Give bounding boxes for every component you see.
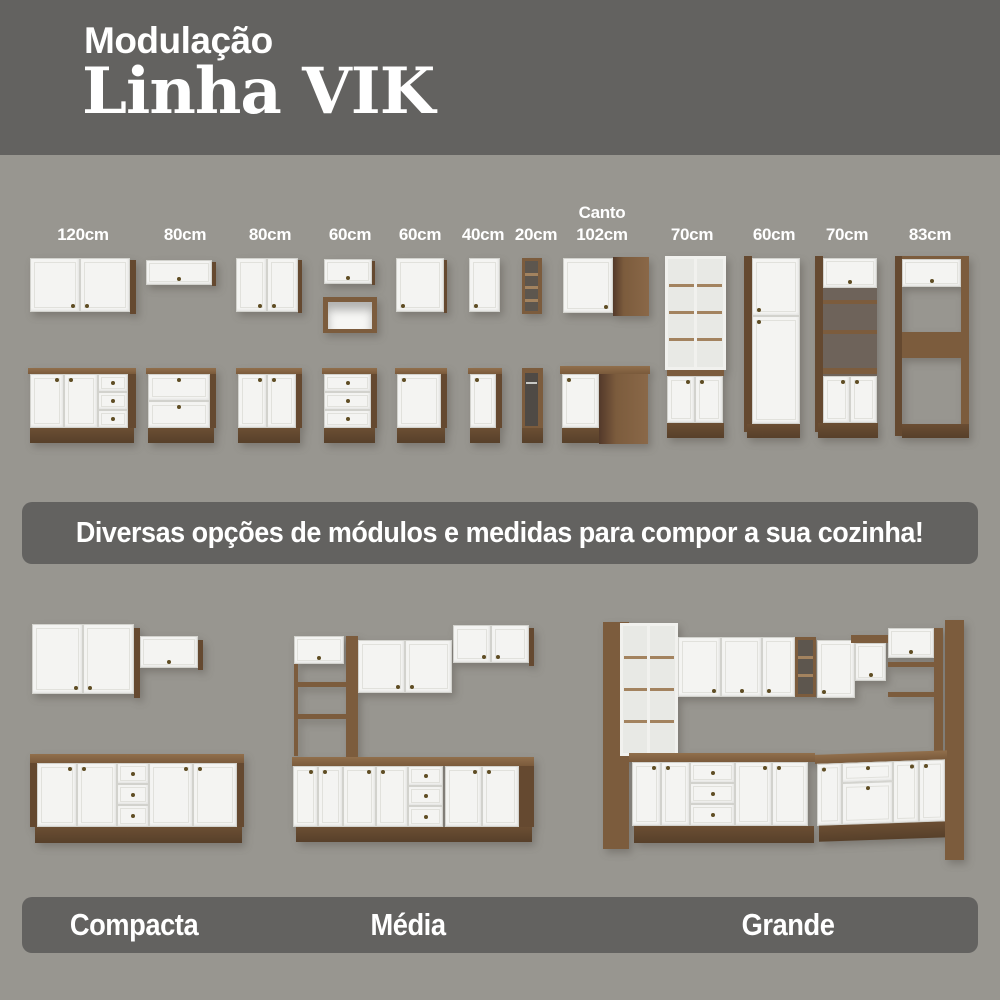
drawer	[98, 410, 128, 428]
base-cabinet-60cm-drawers	[322, 368, 377, 443]
plinth	[562, 428, 599, 443]
module-label-102cm: 102cm	[576, 226, 627, 243]
countertop	[629, 753, 815, 762]
wood-side	[237, 763, 244, 827]
drawer	[408, 766, 443, 786]
shelf	[525, 273, 538, 276]
door	[470, 374, 496, 428]
wood-column	[945, 620, 964, 860]
module-label-canto: Canto	[579, 204, 626, 221]
door	[30, 374, 64, 428]
base-unit-20cm	[522, 368, 543, 443]
door	[77, 763, 117, 827]
door	[405, 640, 452, 693]
door	[149, 763, 193, 827]
module-label-60cm-3: 60cm	[753, 226, 795, 243]
plinth	[818, 423, 878, 438]
door	[823, 376, 850, 423]
module-label-120cm: 120cm	[57, 226, 108, 243]
wood-side	[519, 766, 534, 827]
drawer	[324, 374, 371, 392]
niche-interior	[328, 302, 372, 329]
door	[64, 374, 98, 428]
shelf	[823, 300, 877, 304]
wood-side	[30, 763, 37, 827]
door	[376, 766, 408, 827]
door	[267, 258, 298, 312]
drawer	[324, 410, 371, 428]
plinth	[522, 428, 543, 443]
middle-banner-text: Diversas opções de módulos e medidas par…	[76, 517, 924, 550]
door	[919, 759, 945, 822]
module-label-70cm-1: 70cm	[671, 226, 713, 243]
open-interior	[798, 640, 813, 694]
wood-side	[441, 374, 447, 428]
door	[396, 258, 444, 312]
module-label-80cm-1: 80cm	[164, 226, 206, 243]
shelf	[525, 299, 538, 302]
door	[735, 762, 772, 826]
drawer	[117, 784, 149, 805]
countertop	[560, 366, 650, 374]
base-cabinet-40cm	[468, 368, 502, 443]
drawer	[842, 781, 893, 825]
door	[445, 766, 482, 827]
flip-door	[140, 636, 198, 668]
wood-side	[294, 664, 298, 756]
plinth	[819, 821, 945, 841]
door	[238, 374, 267, 428]
door	[294, 636, 344, 664]
shelf	[294, 682, 354, 687]
wall-cabinet-60cm	[396, 258, 447, 314]
wood-side	[371, 374, 377, 428]
door	[562, 374, 599, 428]
plinth	[470, 428, 500, 443]
base-cabinet-60cm	[395, 368, 447, 443]
wood-side	[444, 260, 447, 313]
kitchen-grande	[603, 616, 973, 874]
door	[661, 762, 690, 826]
base-cabinet-80cm	[236, 368, 302, 443]
door	[453, 625, 491, 663]
module-label-20cm: 20cm	[515, 226, 557, 243]
drawer	[690, 804, 735, 826]
drawer	[117, 763, 149, 784]
drawer	[690, 783, 735, 804]
door	[893, 760, 919, 823]
shelf	[294, 714, 354, 719]
wood-side	[961, 256, 969, 438]
door	[772, 762, 808, 826]
wood-side	[198, 640, 203, 670]
wood-side	[895, 256, 902, 436]
wood-side	[296, 374, 302, 428]
shelf	[823, 368, 877, 374]
door	[80, 258, 130, 312]
wood-side	[130, 260, 136, 314]
plinth	[397, 428, 445, 443]
plinth	[324, 428, 375, 443]
drawer	[408, 806, 443, 827]
header-banner: Modulação Linha VIK	[0, 0, 1000, 155]
wood-side	[372, 261, 375, 285]
glass-mullion	[647, 626, 650, 753]
door	[469, 258, 500, 312]
open-interior	[525, 373, 538, 426]
countertop	[292, 757, 534, 766]
tall-cabinet-glass-70cm	[665, 256, 726, 438]
kitchen-media	[290, 618, 536, 848]
flip-door	[146, 260, 212, 285]
tall-cabinet-oven-70cm	[815, 256, 881, 438]
drawer	[408, 786, 443, 806]
door	[817, 763, 842, 826]
module-label-60cm-1: 60cm	[329, 226, 371, 243]
base-cabinet-120cm	[28, 368, 136, 443]
open-niche-60cm	[323, 297, 377, 333]
door	[83, 624, 134, 694]
wood-side	[210, 374, 216, 428]
door	[752, 316, 800, 424]
door	[762, 637, 795, 697]
door	[695, 376, 723, 423]
shelf	[525, 286, 538, 289]
tall-cabinet-60cm	[744, 256, 802, 438]
page: Modulação Linha VIK 120cm 80cm 80cm 60cm…	[0, 0, 1000, 1000]
wood-side	[529, 628, 534, 666]
door	[482, 766, 519, 827]
wall-cabinet-80cm	[236, 258, 302, 314]
wood-back-panel	[902, 332, 961, 358]
door	[318, 766, 343, 827]
door	[37, 763, 77, 827]
middle-banner: Diversas opções de módulos e medidas par…	[22, 502, 978, 564]
corner-wood-panel	[599, 374, 648, 444]
door	[267, 374, 296, 428]
door	[343, 766, 376, 827]
module-label-83cm: 83cm	[909, 226, 951, 243]
wood-side	[815, 256, 823, 432]
door	[32, 624, 83, 694]
module-label-40cm: 40cm	[462, 226, 504, 243]
drawer	[98, 374, 128, 392]
wall-shelf-20cm	[522, 258, 542, 314]
door	[721, 637, 762, 697]
header-title: Linha VIK	[82, 60, 434, 124]
plinth	[902, 424, 969, 438]
corner-wood-panel	[613, 257, 649, 316]
door	[293, 766, 318, 827]
drawer	[842, 761, 893, 783]
shelf	[823, 330, 877, 334]
door	[667, 376, 695, 423]
door	[236, 258, 267, 312]
plinth	[634, 826, 814, 843]
module-label-70cm-2: 70cm	[826, 226, 868, 243]
plinth	[238, 428, 300, 443]
glass-mullion	[694, 259, 697, 367]
door	[358, 640, 405, 693]
drawer	[324, 392, 371, 410]
door	[632, 762, 661, 826]
plinth	[30, 428, 134, 443]
wood-side	[496, 374, 502, 428]
drawer	[98, 392, 128, 410]
door	[397, 374, 441, 428]
kitchen-label-grande: Grande	[742, 907, 835, 943]
door	[850, 376, 877, 423]
shelf	[798, 674, 813, 677]
countertop	[30, 754, 244, 763]
base-cabinet-80cm-drawers	[146, 368, 216, 443]
base-right-run	[813, 611, 947, 866]
door	[678, 637, 721, 697]
door	[563, 258, 613, 313]
drawer	[148, 401, 210, 428]
plinth	[35, 827, 242, 843]
bottom-banner: Compacta Média Grande	[22, 897, 978, 953]
kitchen-label-compacta: Compacta	[70, 907, 198, 943]
door	[491, 625, 529, 663]
drawer	[690, 762, 735, 783]
plinth	[747, 424, 800, 438]
kitchen-compacta	[28, 618, 246, 854]
corner-wall-cabinet-102cm	[562, 257, 649, 316]
plinth	[667, 423, 724, 438]
fridge-frame-83cm	[895, 256, 969, 438]
wall-cabinet-80cm-flip	[146, 260, 216, 287]
towel-rail	[526, 382, 537, 384]
shelf	[798, 656, 813, 659]
flip-door	[902, 259, 961, 287]
wood-side	[744, 256, 752, 432]
wood-side	[128, 374, 136, 428]
module-label-80cm-2: 80cm	[249, 226, 291, 243]
plinth	[148, 428, 214, 443]
module-label-60cm-2: 60cm	[399, 226, 441, 243]
wall-cabinet-120cm	[30, 258, 137, 314]
door	[823, 258, 877, 288]
wood-side	[212, 262, 216, 286]
door	[193, 763, 237, 827]
wall-cabinet-40cm	[469, 258, 501, 314]
door	[30, 258, 80, 312]
corner-base-cabinet-102cm	[560, 366, 650, 444]
drawer	[117, 805, 149, 827]
drawer	[148, 374, 210, 401]
door	[752, 258, 800, 316]
plinth	[296, 827, 532, 842]
kitchen-label-media: Média	[370, 907, 445, 943]
flip-door	[324, 259, 372, 284]
wood-side	[298, 260, 302, 313]
wall-cabinet-60cm-flip	[324, 259, 376, 286]
